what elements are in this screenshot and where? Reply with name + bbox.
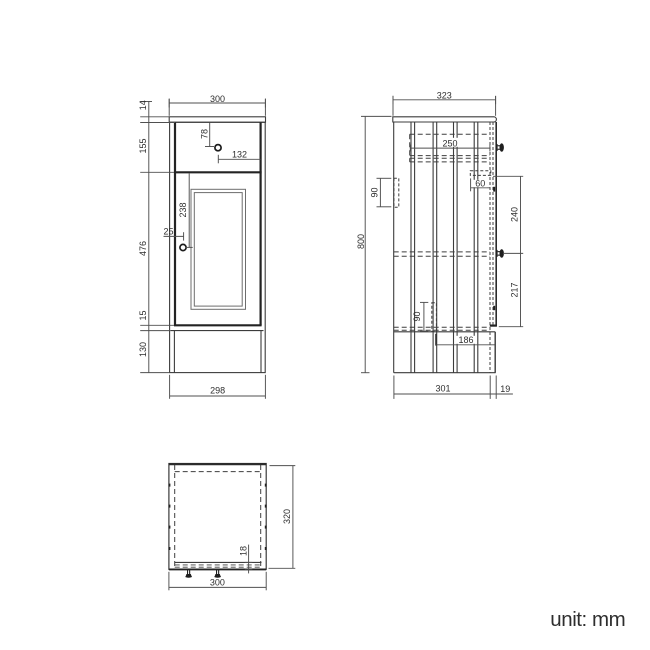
svg-text:18: 18 [238, 546, 248, 556]
svg-text:186: 186 [458, 335, 473, 345]
svg-text:78: 78 [200, 129, 210, 139]
svg-text:300: 300 [210, 577, 225, 587]
svg-text:60: 60 [475, 178, 485, 188]
svg-text:476: 476 [138, 241, 148, 256]
svg-text:240: 240 [509, 207, 519, 222]
svg-text:217: 217 [509, 282, 519, 297]
svg-text:132: 132 [232, 150, 247, 160]
svg-text:800: 800 [356, 234, 366, 249]
svg-text:90: 90 [370, 187, 380, 197]
svg-text:238: 238 [178, 202, 188, 217]
svg-text:90: 90 [412, 311, 422, 321]
svg-text:250: 250 [442, 138, 457, 148]
svg-text:298: 298 [210, 386, 225, 396]
svg-text:130: 130 [138, 342, 148, 357]
svg-text:301: 301 [435, 384, 450, 394]
svg-text:19: 19 [500, 384, 510, 394]
svg-text:unit: mm: unit: mm [550, 608, 625, 631]
svg-text:320: 320 [282, 509, 292, 524]
svg-text:155: 155 [138, 138, 148, 153]
svg-text:323: 323 [437, 91, 452, 101]
svg-text:14: 14 [138, 100, 148, 110]
svg-text:15: 15 [138, 310, 148, 320]
svg-text:300: 300 [210, 94, 225, 104]
svg-text:25: 25 [163, 227, 173, 237]
